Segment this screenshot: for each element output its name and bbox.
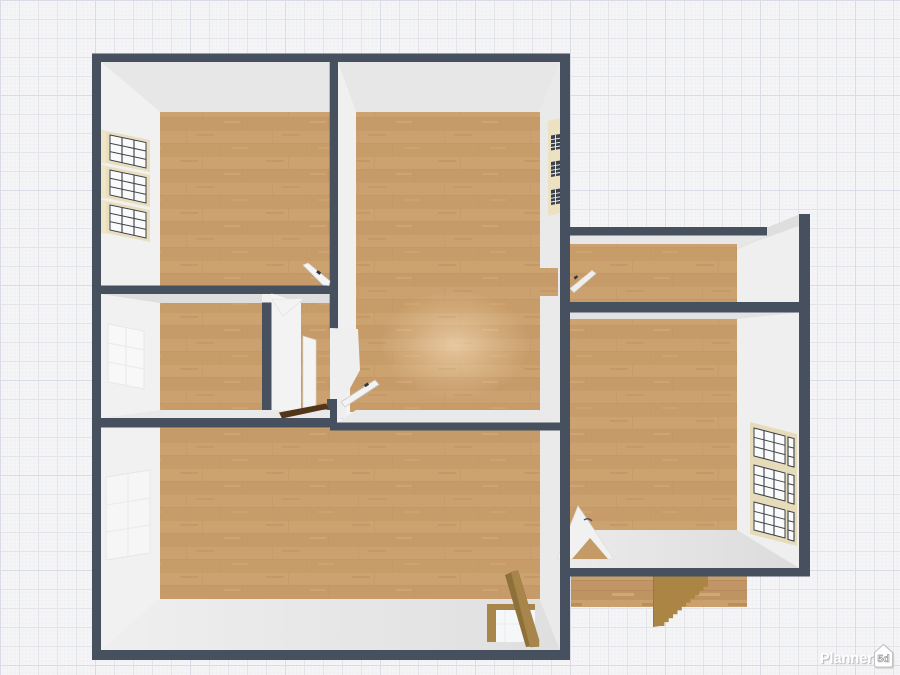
svg-text:5d: 5d — [877, 653, 889, 665]
svg-text:Planner: Planner — [820, 651, 874, 667]
